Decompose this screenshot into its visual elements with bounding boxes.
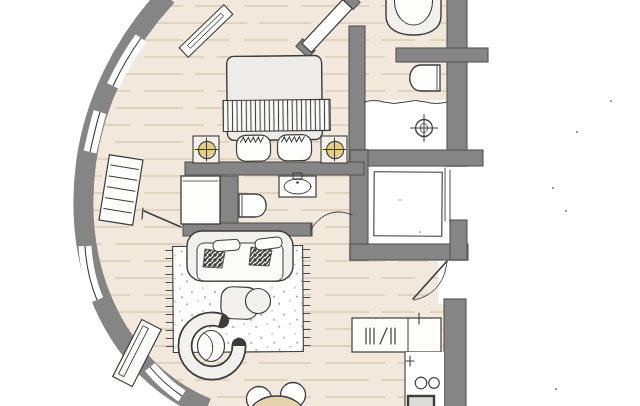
shower-floor [364, 100, 447, 153]
wall-headboard [185, 162, 364, 175]
living-room [166, 231, 311, 373]
wall-tub-divider [396, 48, 488, 62]
sofa-pillow [213, 239, 241, 252]
pillow-left [236, 135, 270, 161]
wall-bath-left [349, 26, 365, 162]
bathtub [386, 0, 441, 35]
toilet [410, 65, 440, 91]
sketch-specks [552, 100, 612, 390]
elevator-interior [366, 166, 458, 244]
kitchen-counter [352, 313, 441, 352]
washbasin [279, 173, 316, 197]
sofa [187, 231, 293, 281]
oven [408, 396, 434, 406]
striped-throw-hatch [223, 99, 330, 131]
nightstand-right [321, 136, 347, 163]
wall-elevator-stub [450, 220, 467, 260]
cushion-scribble [203, 249, 225, 268]
toilet [239, 194, 266, 217]
nightstand-left [193, 136, 219, 163]
kitchen-run [405, 352, 444, 406]
wall-elevator-top [350, 150, 483, 166]
floor-plan-canvas: Hand-drawn floor plan sketch of a studio… [0, 0, 640, 406]
entrance-floor [438, 256, 470, 304]
floor-plan-drawing: Hand-drawn floor plan sketch of a studio… [0, 0, 640, 406]
wall-kitchen-right [444, 299, 466, 406]
wall-wc-mid [220, 176, 238, 230]
pillow-right [277, 135, 311, 161]
wall-right-top [447, 0, 467, 166]
wardrobe [181, 176, 220, 224]
